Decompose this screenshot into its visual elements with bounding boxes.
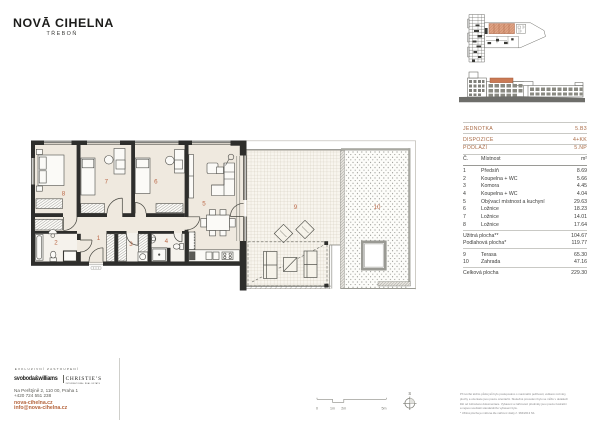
svg-text:0: 0 bbox=[316, 407, 318, 411]
svg-text:10: 10 bbox=[374, 204, 381, 211]
svg-text:9: 9 bbox=[294, 204, 298, 211]
svg-text:1m: 1m bbox=[330, 407, 335, 411]
svg-text:5m: 5m bbox=[382, 407, 387, 411]
svg-text:5: 5 bbox=[202, 201, 206, 208]
svg-text:4: 4 bbox=[165, 238, 169, 245]
svg-text:2m: 2m bbox=[341, 407, 346, 411]
svg-text:6: 6 bbox=[154, 178, 158, 185]
svg-text:S: S bbox=[408, 391, 411, 396]
